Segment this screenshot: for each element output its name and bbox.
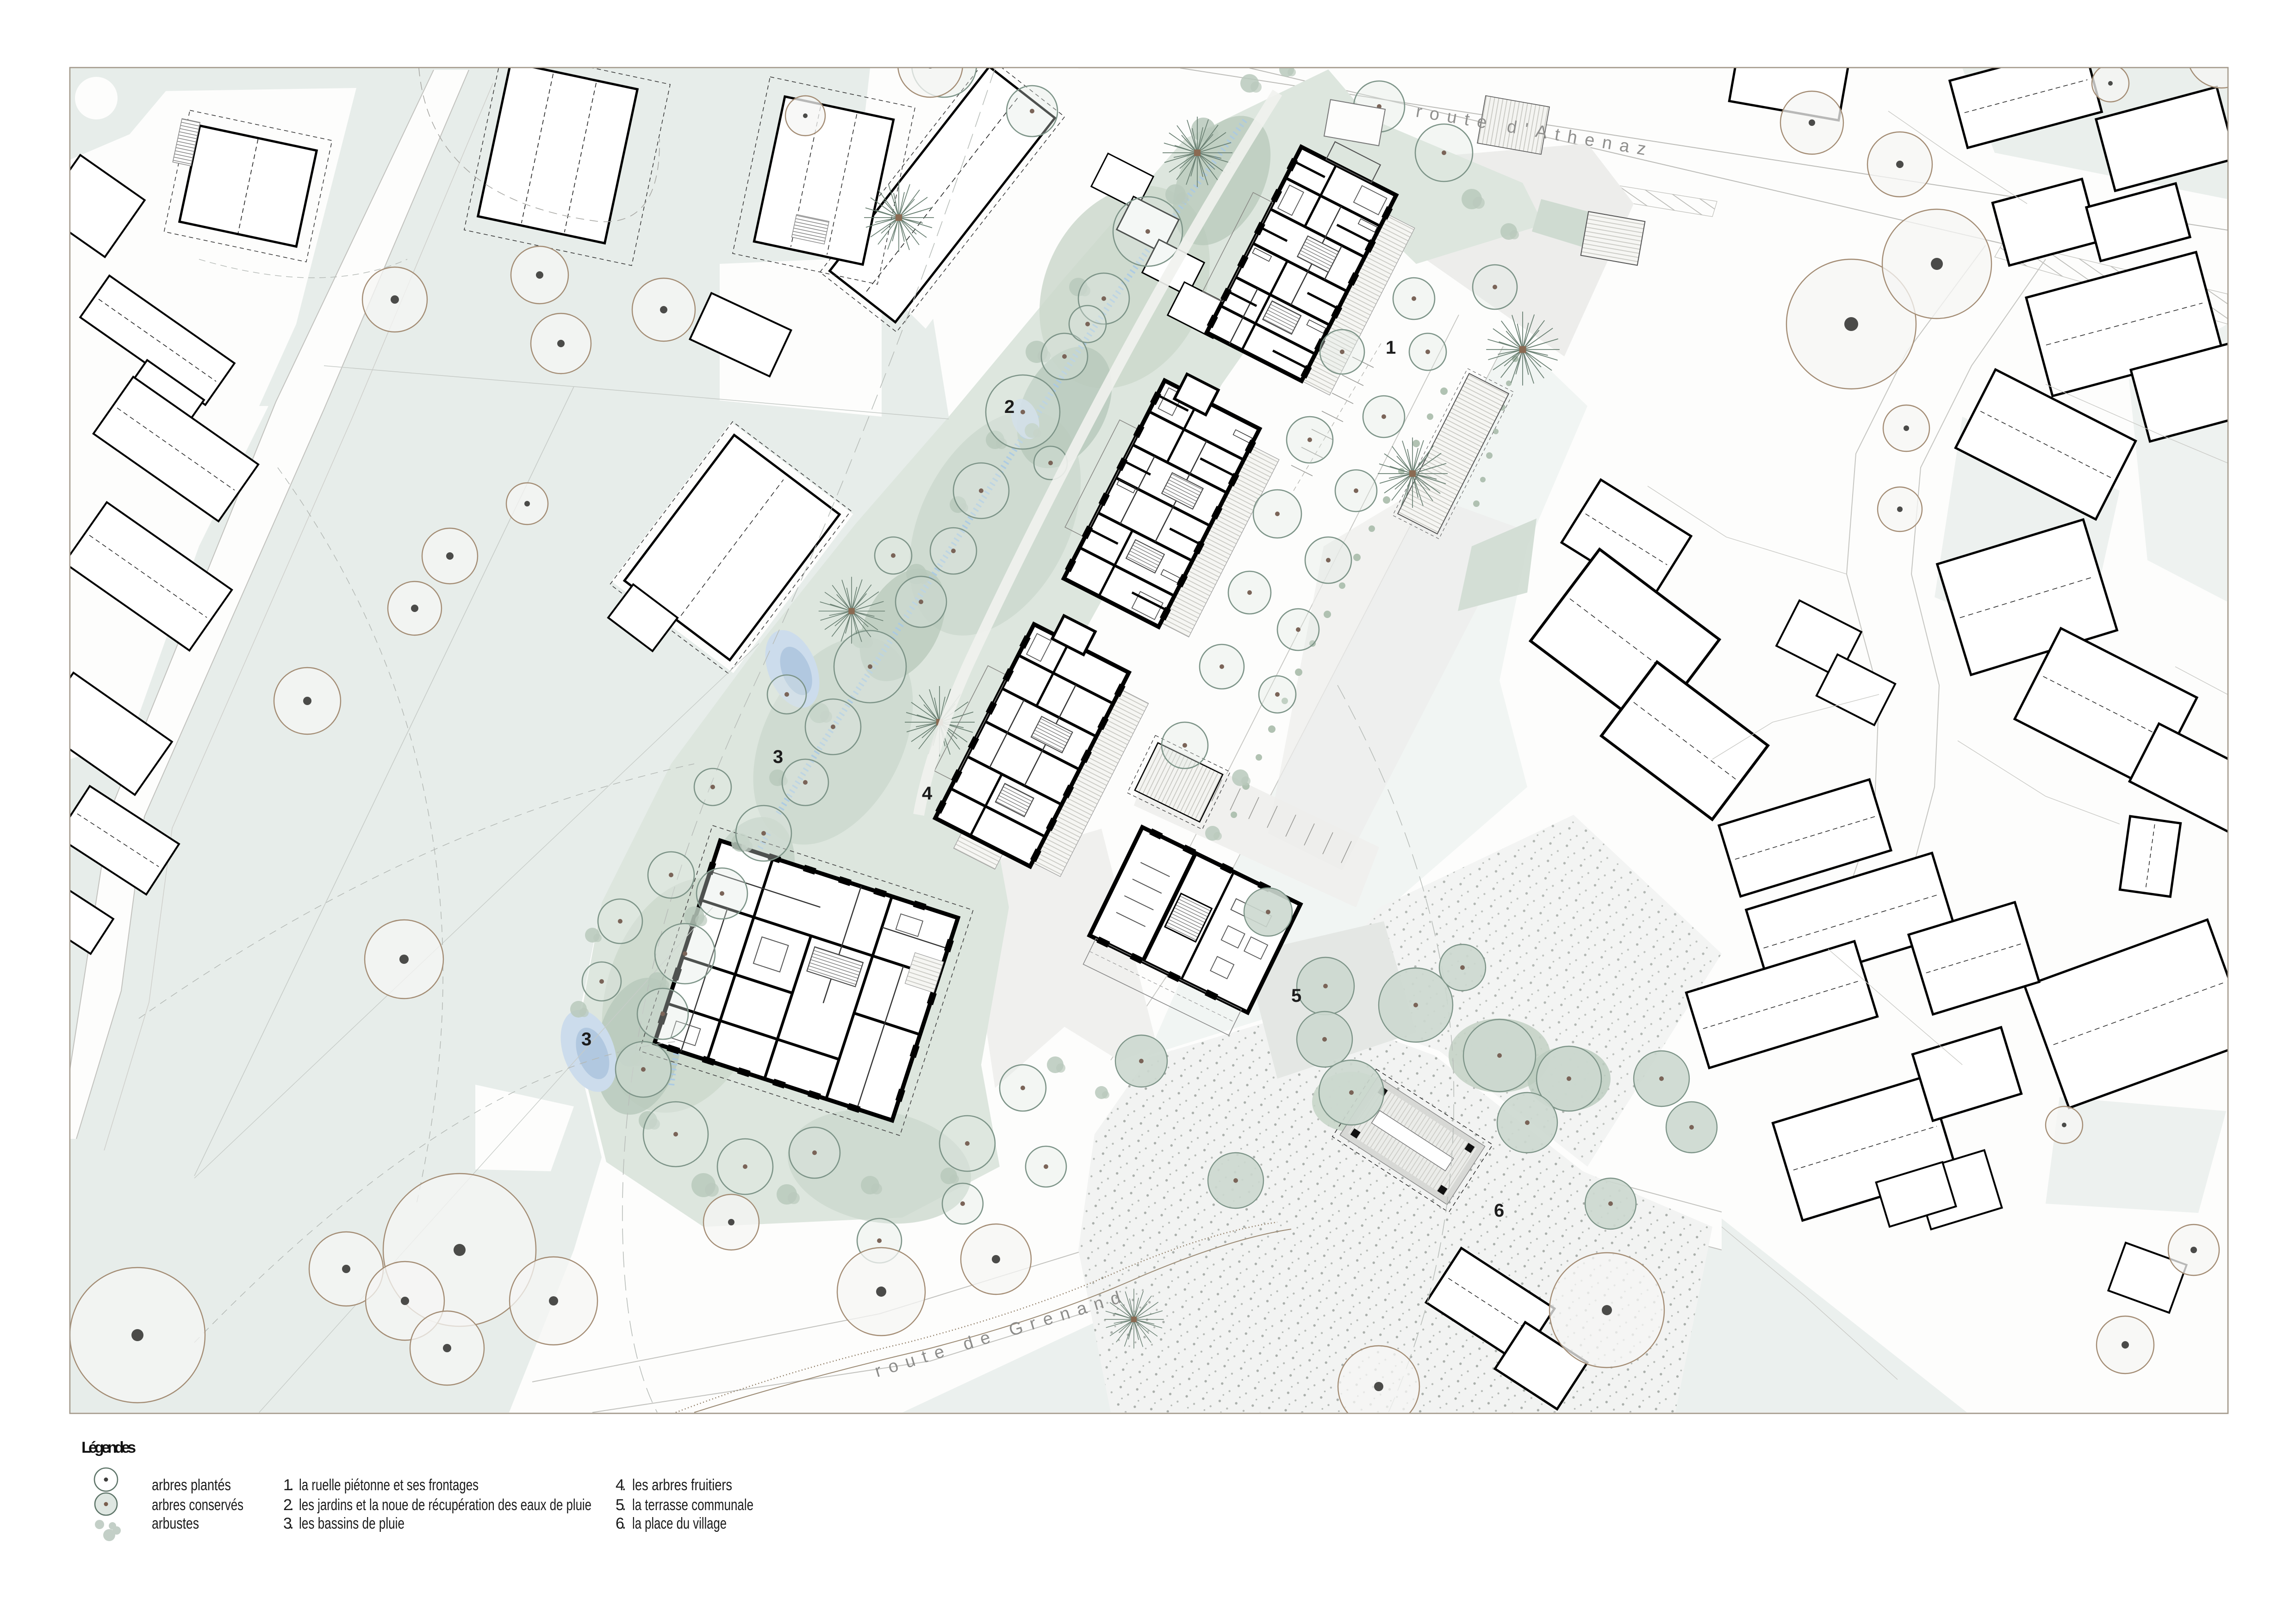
- svg-text:la place du village: la place du village: [632, 1515, 727, 1532]
- svg-text:5.: 5.: [616, 1496, 626, 1514]
- svg-text:les bassins de pluie: les bassins de pluie: [299, 1515, 404, 1532]
- svg-text:3.: 3.: [283, 1515, 294, 1532]
- svg-text:arbres plantés: arbres plantés: [152, 1476, 231, 1494]
- svg-text:la terrasse communale: la terrasse communale: [632, 1496, 753, 1514]
- svg-text:2: 2: [1004, 397, 1014, 417]
- svg-text:arbustes: arbustes: [152, 1515, 199, 1532]
- svg-text:3: 3: [581, 1029, 591, 1049]
- svg-text:1: 1: [1386, 337, 1396, 358]
- svg-text:6: 6: [1494, 1200, 1504, 1221]
- svg-text:Légendes: Légendes: [81, 1439, 136, 1456]
- svg-text:les jardins et la noue de récu: les jardins et la noue de récupération d…: [299, 1496, 591, 1514]
- svg-text:6.: 6.: [616, 1515, 626, 1532]
- svg-text:les arbres fruitiers: les arbres fruitiers: [632, 1476, 732, 1494]
- svg-text:la ruelle piétonne et ses fron: la ruelle piétonne et ses frontages: [299, 1476, 479, 1494]
- svg-text:3: 3: [773, 747, 783, 767]
- svg-text:2.: 2.: [283, 1496, 294, 1514]
- svg-text:4.: 4.: [616, 1476, 626, 1494]
- svg-text:1.: 1.: [283, 1476, 294, 1494]
- svg-text:arbres conservés: arbres conservés: [152, 1496, 243, 1514]
- svg-text:4: 4: [922, 783, 933, 804]
- svg-text:5: 5: [1291, 986, 1301, 1006]
